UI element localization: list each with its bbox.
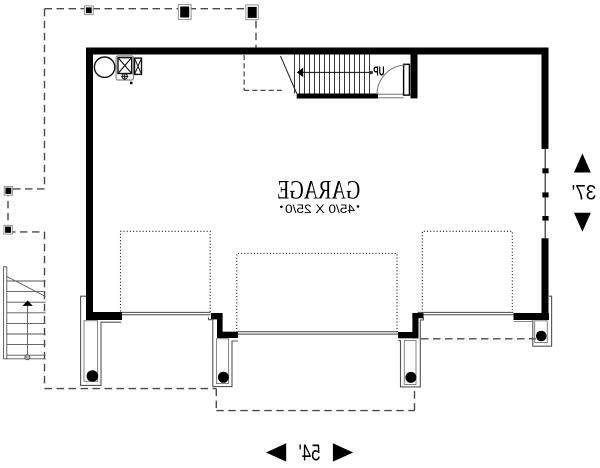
svg-text:37': 37' — [572, 180, 597, 204]
svg-text:45/0 X 25/0: 45/0 X 25/0 — [285, 202, 355, 216]
svg-text:UP: UP — [373, 65, 384, 79]
svg-text:GARAGE: GARAGE — [277, 175, 360, 205]
svg-text:54': 54' — [299, 439, 321, 465]
